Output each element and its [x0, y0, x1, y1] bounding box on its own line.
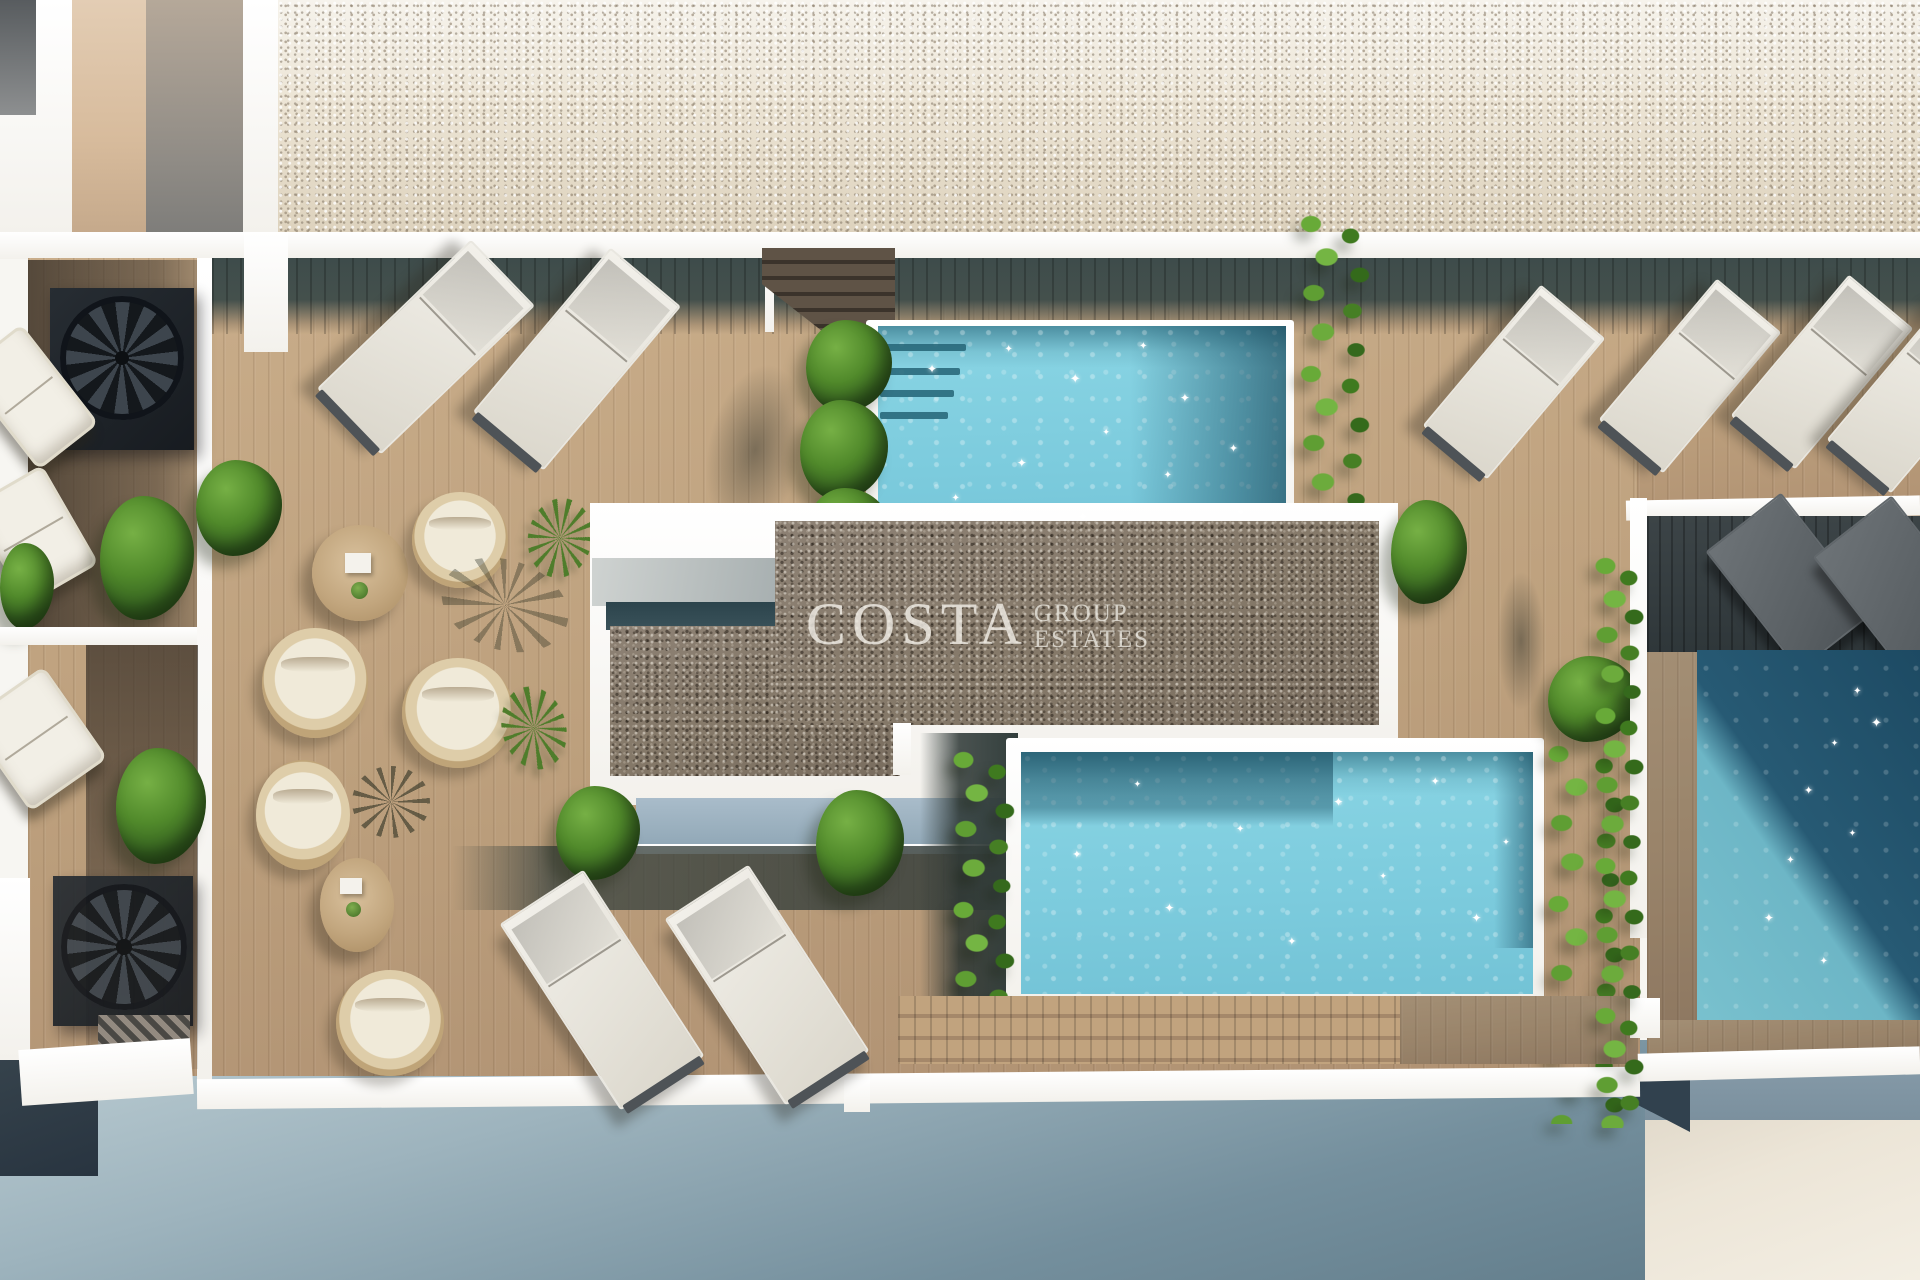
- table-tray: [340, 878, 362, 894]
- watermark-subtitle: GROUP ESTATES: [1034, 601, 1150, 652]
- table-tray: [345, 553, 371, 573]
- water-sparkle-icon: ✦: [1070, 373, 1081, 386]
- top-left-dark-block: [0, 0, 36, 115]
- spiral-staircase-lower-steps: [61, 884, 187, 1010]
- water-sparkle-icon: ✦: [1820, 957, 1828, 967]
- water-sparkle-icon: ✦: [1853, 687, 1861, 697]
- watermark: COSTA GROUP ESTATES: [806, 594, 1150, 654]
- water-sparkle-icon: ✦: [1287, 936, 1296, 947]
- right-terrace-vines: [1592, 554, 1646, 1128]
- court-notch: [893, 723, 911, 775]
- round-dining-table: [312, 525, 408, 621]
- top-left-wood-strip: [72, 0, 146, 234]
- water-sparkle-icon: ✦: [1072, 849, 1081, 860]
- table-plant-pot: [351, 582, 368, 599]
- water-sparkle-icon: ✦: [1333, 796, 1343, 808]
- water-sparkle-icon: ✦: [1831, 740, 1839, 749]
- left-wall-band: [0, 627, 197, 645]
- water-sparkle-icon: ✦: [1139, 342, 1147, 352]
- vine-shadow: [1488, 545, 1554, 737]
- water-sparkle-icon: ✦: [1164, 902, 1174, 914]
- lounge-chair: [262, 628, 368, 738]
- lounge-chair: [256, 760, 350, 870]
- lower-pool-vines-left: [944, 748, 1022, 1010]
- water-sparkle-icon: ✦: [1786, 856, 1794, 866]
- right-pool-sparkles: ✦ ✦ ✦ ✦ ✦ ✦ ✦ ✦: [1697, 650, 1920, 1024]
- water-sparkle-icon: ✦: [1164, 471, 1172, 481]
- water-sparkle-icon: ✦: [1502, 839, 1510, 848]
- water-sparkle-icon: ✦: [1017, 457, 1027, 469]
- watermark-title: COSTA: [806, 594, 1028, 654]
- water-sparkle-icon: ✦: [1871, 717, 1882, 730]
- lower-pool-sparkles: ✦ ✦ ✦ ✦ ✦ ✦ ✦ ✦ ✦ ✦: [1021, 752, 1533, 994]
- watermark-subtitle-line2: ESTATES: [1034, 627, 1150, 653]
- spiral-staircase-lower: [53, 876, 193, 1026]
- top-left-gray-strip: [146, 0, 243, 234]
- right-pool-deck-strip: [1647, 652, 1697, 1024]
- left-parapet-sliver: [0, 878, 30, 1060]
- upper-pool-sparkles: ✦ ✦ ✦ ✦ ✦ ✦ ✦ ✦ ✦ ✦ ✦ ✦: [878, 326, 1286, 560]
- table-plant-pot: [346, 902, 361, 917]
- roof-gravel-field: [278, 0, 1920, 234]
- water-sparkle-icon: ✦: [1379, 873, 1387, 882]
- lounge-chair: [336, 970, 444, 1076]
- left-bottom-wall: [18, 1038, 193, 1106]
- water-sparkle-icon: ✦: [927, 363, 937, 375]
- rooftop-terrace-render: ✦ ✦ ✦ ✦ ✦ ✦ ✦ ✦ ✦ ✦ ✦ ✦ ✦ ✦ ✦ ✦ ✦ ✦ ✦ ✦ …: [0, 0, 1920, 1280]
- palm-plant: [352, 766, 430, 838]
- wall-connector: [244, 232, 288, 352]
- left-wing-wall: [197, 258, 212, 1080]
- water-sparkle-icon: ✦: [1004, 345, 1012, 355]
- concrete-ledge: [592, 558, 778, 606]
- lounge-chair: [402, 658, 514, 768]
- watermark-subtitle-line1: GROUP: [1034, 601, 1150, 627]
- parapet-notch: [844, 1080, 870, 1112]
- water-sparkle-icon: ✦: [1237, 509, 1245, 518]
- water-sparkle-icon: ✦: [1472, 912, 1482, 924]
- water-sparkle-icon: ✦: [1078, 511, 1088, 523]
- water-sparkle-icon: ✦: [1849, 830, 1857, 839]
- parapet-wall-top: [0, 232, 1920, 259]
- water-sparkle-icon: ✦: [1134, 781, 1142, 790]
- water-sparkle-icon: ✦: [951, 494, 959, 504]
- water-sparkle-icon: ✦: [1431, 776, 1440, 787]
- water-sparkle-icon: ✦: [1236, 825, 1244, 835]
- water-sparkle-icon: ✦: [1804, 785, 1813, 796]
- wide-wood-steps: [898, 996, 1400, 1064]
- water-sparkle-icon: ✦: [1764, 912, 1774, 924]
- water-sparkle-icon: ✦: [1180, 392, 1190, 404]
- water-sparkle-icon: ✦: [1102, 429, 1110, 438]
- water-sparkle-icon: ✦: [1229, 443, 1238, 454]
